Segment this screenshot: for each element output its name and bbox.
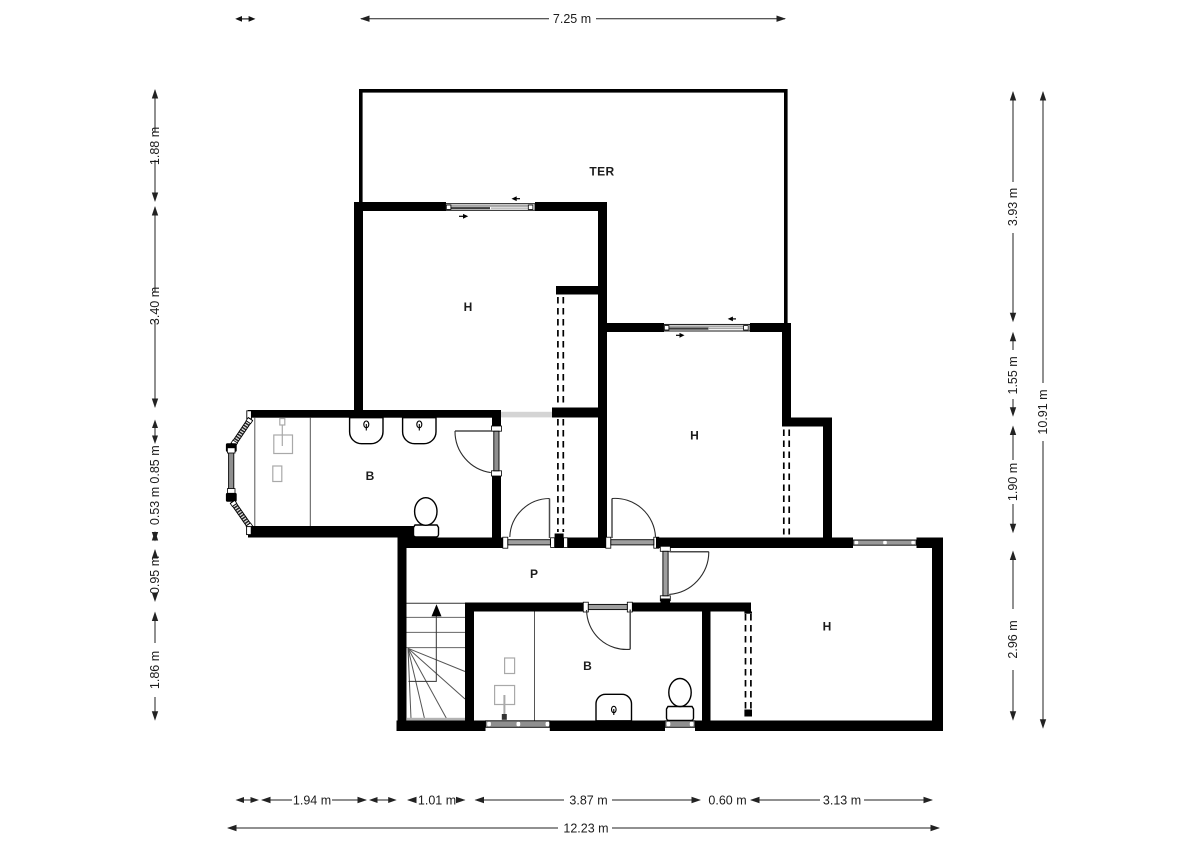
svg-text:H: H — [464, 300, 473, 314]
svg-text:H: H — [690, 429, 699, 443]
svg-text:7.25 m: 7.25 m — [553, 12, 591, 26]
svg-text:B: B — [366, 469, 375, 483]
svg-text:0.95 m: 0.95 m — [148, 556, 162, 594]
svg-text:3.13 m: 3.13 m — [823, 794, 861, 808]
svg-text:0.53 m: 0.53 m — [148, 487, 162, 525]
svg-text:1.01 m: 1.01 m — [418, 794, 456, 808]
svg-text:B: B — [583, 659, 592, 673]
svg-text:1.94 m: 1.94 m — [293, 794, 331, 808]
svg-text:1.55 m: 1.55 m — [1006, 356, 1020, 394]
svg-text:1.86 m: 1.86 m — [148, 651, 162, 689]
svg-text:H: H — [823, 620, 832, 634]
svg-text:10.91 m: 10.91 m — [1036, 389, 1050, 434]
svg-text:0.60 m: 0.60 m — [708, 794, 746, 808]
svg-text:1.88 m: 1.88 m — [148, 127, 162, 165]
svg-text:1.90 m: 1.90 m — [1006, 463, 1020, 501]
svg-text:TER: TER — [589, 165, 614, 179]
svg-text:P: P — [530, 567, 538, 581]
svg-text:3.87 m: 3.87 m — [569, 794, 607, 808]
svg-text:3.93 m: 3.93 m — [1006, 188, 1020, 226]
svg-text:12.23 m: 12.23 m — [563, 822, 608, 836]
svg-text:0.85 m: 0.85 m — [148, 445, 162, 483]
svg-text:2.96 m: 2.96 m — [1006, 620, 1020, 658]
svg-text:3.40 m: 3.40 m — [148, 287, 162, 325]
